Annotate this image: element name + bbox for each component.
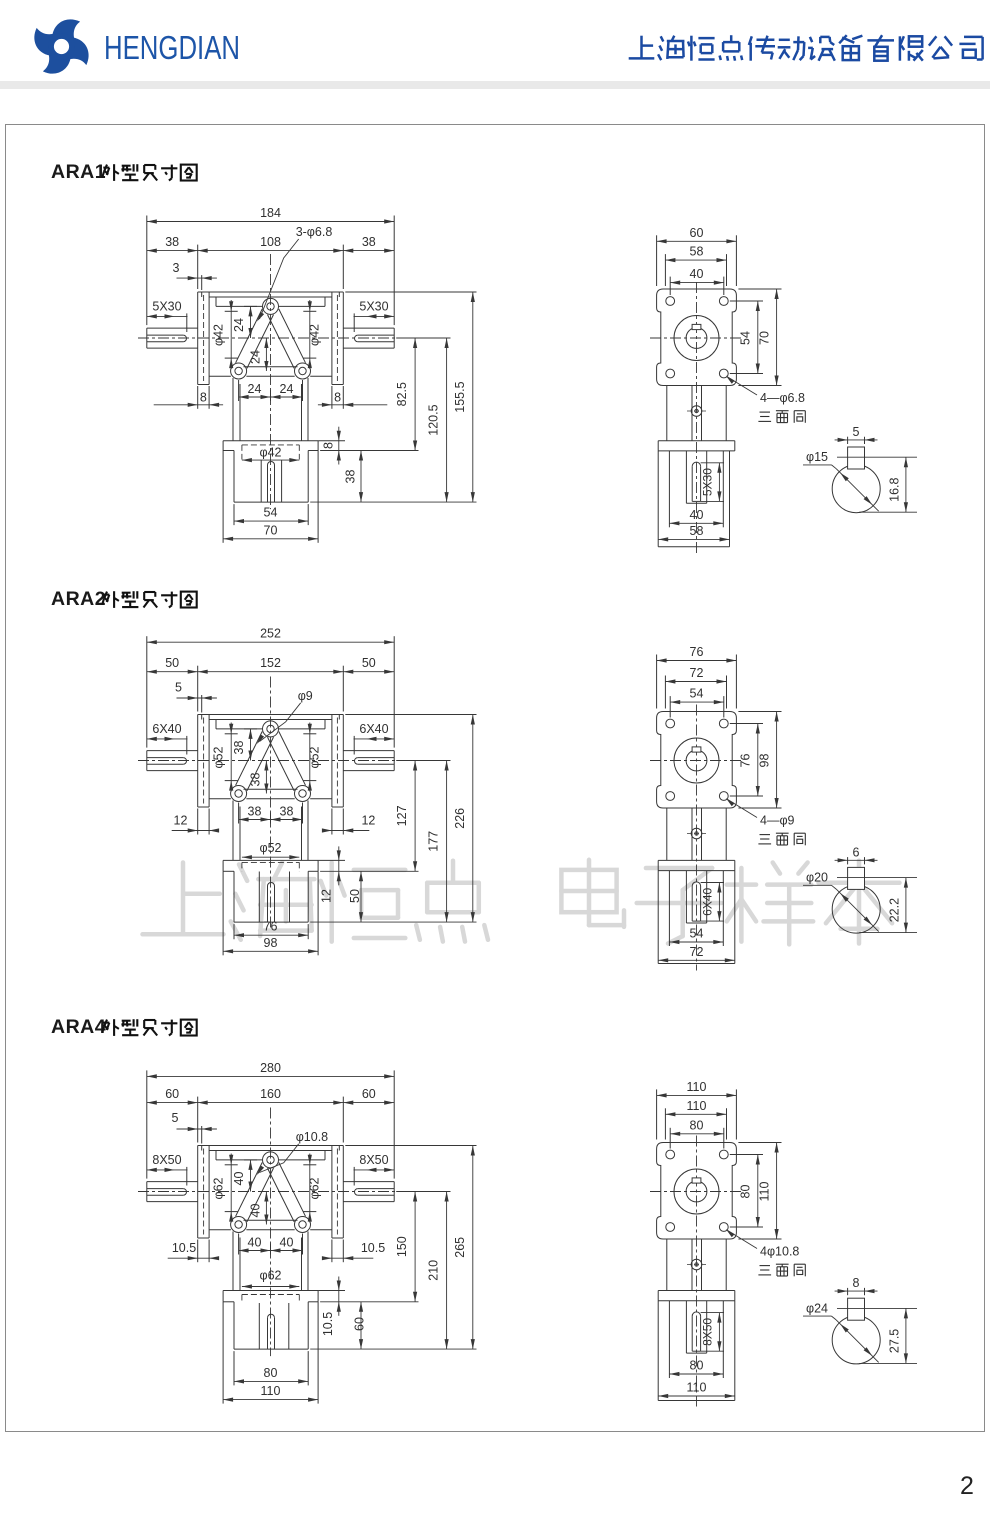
svg-text:27.5: 27.5 [887,1329,901,1353]
svg-text:ARA2: ARA2 [51,588,106,610]
svg-text:50: 50 [165,656,179,670]
svg-text:70: 70 [264,523,278,537]
svg-text:φ52: φ52 [259,841,281,855]
svg-text:127: 127 [395,805,409,826]
svg-text:110: 110 [758,1181,772,1201]
svg-text:58: 58 [690,245,704,259]
svg-text:φ52: φ52 [308,746,322,768]
svg-text:5: 5 [175,681,182,695]
svg-text:155.5: 155.5 [453,381,467,412]
svg-text:38: 38 [344,470,358,484]
svg-text:120.5: 120.5 [427,404,441,435]
svg-text:φ15: φ15 [806,450,828,464]
svg-text:8X50: 8X50 [701,1318,715,1346]
svg-text:24: 24 [248,382,262,396]
svg-text:ARA4: ARA4 [51,1016,106,1038]
svg-text:φ42: φ42 [259,446,281,460]
svg-text:4—φ6.8: 4—φ6.8 [760,391,805,405]
svg-text:8X50: 8X50 [152,1153,181,1167]
svg-text:8: 8 [334,391,341,405]
svg-text:4φ10.8: 4φ10.8 [760,1245,799,1259]
svg-text:5X30: 5X30 [152,300,181,314]
svg-text:50: 50 [362,656,376,670]
svg-text:82.5: 82.5 [395,382,409,406]
svg-text:76: 76 [739,754,753,768]
svg-text:110: 110 [687,1099,707,1113]
svg-text:38: 38 [249,773,263,787]
svg-text:80: 80 [690,1118,704,1132]
svg-text:φ62: φ62 [308,1177,322,1199]
svg-text:24: 24 [232,318,246,332]
svg-text:12: 12 [361,814,375,828]
svg-text:5: 5 [172,1111,179,1125]
svg-text:24: 24 [249,350,263,364]
svg-text:φ9: φ9 [298,689,313,703]
svg-text:12: 12 [320,889,334,903]
svg-text:5X30: 5X30 [359,300,388,314]
svg-text:40: 40 [690,508,704,522]
svg-text:160: 160 [260,1087,281,1101]
svg-text:76: 76 [264,920,278,934]
svg-text:6X40: 6X40 [152,722,181,736]
svg-text:38: 38 [280,805,294,819]
svg-text:10.5: 10.5 [321,1312,335,1336]
svg-text:80: 80 [690,1359,704,1373]
svg-text:6X40: 6X40 [701,887,715,915]
svg-text:54: 54 [690,687,704,701]
svg-text:60: 60 [353,1317,367,1331]
svg-text:3-φ6.8: 3-φ6.8 [296,225,333,239]
svg-text:40: 40 [232,1172,246,1186]
svg-text:108: 108 [260,235,281,249]
svg-text:φ52: φ52 [212,746,226,768]
svg-text:40: 40 [690,267,704,281]
svg-text:8: 8 [322,442,336,449]
svg-text:50: 50 [348,889,362,903]
svg-text:110: 110 [687,1080,707,1094]
svg-text:φ62: φ62 [212,1177,226,1199]
svg-text:72: 72 [690,945,704,959]
svg-text:40: 40 [248,1236,262,1250]
svg-text:ARA1: ARA1 [51,161,106,183]
svg-text:10.5: 10.5 [361,1241,385,1255]
svg-text:150: 150 [395,1236,409,1257]
svg-text:φ62: φ62 [259,1269,281,1283]
svg-text:177: 177 [427,831,441,852]
svg-text:80: 80 [264,1366,278,1380]
svg-text:265: 265 [453,1237,467,1258]
svg-text:76: 76 [690,645,704,659]
svg-text:38: 38 [165,235,179,249]
svg-text:8: 8 [200,391,207,405]
svg-text:98: 98 [758,754,772,768]
svg-text:3: 3 [173,261,180,275]
svg-text:54: 54 [739,331,753,345]
svg-text:10.5: 10.5 [172,1241,196,1255]
svg-text:110: 110 [261,1384,281,1398]
svg-text:58: 58 [690,524,704,538]
svg-text:φ42: φ42 [308,324,322,346]
svg-text:40: 40 [280,1236,294,1250]
svg-text:38: 38 [362,235,376,249]
svg-text:5X30: 5X30 [701,468,715,496]
svg-text:80: 80 [739,1185,753,1199]
svg-text:60: 60 [165,1087,179,1101]
svg-text:110: 110 [687,1381,707,1395]
svg-text:72: 72 [690,666,704,680]
svg-text:φ20: φ20 [806,871,828,885]
svg-text:22.2: 22.2 [887,898,901,922]
svg-text:φ10.8: φ10.8 [296,1130,328,1144]
svg-text:54: 54 [690,927,704,941]
svg-text:φ24: φ24 [806,1301,828,1315]
svg-text:70: 70 [758,331,772,345]
svg-text:12: 12 [174,814,188,828]
svg-text:226: 226 [453,808,467,829]
svg-text:38: 38 [248,805,262,819]
svg-text:8: 8 [853,1276,860,1290]
svg-text:8X50: 8X50 [359,1153,388,1167]
svg-text:6: 6 [853,845,860,859]
svg-text:60: 60 [362,1087,376,1101]
svg-text:4—φ9: 4—φ9 [760,814,795,828]
svg-text:54: 54 [264,506,278,520]
svg-text:184: 184 [260,206,281,220]
svg-text:16.8: 16.8 [887,477,901,501]
svg-text:38: 38 [232,741,246,755]
svg-text:152: 152 [260,656,281,670]
svg-text:280: 280 [260,1061,281,1075]
svg-text:φ42: φ42 [212,324,226,346]
svg-text:5: 5 [853,425,860,439]
svg-text:40: 40 [249,1204,263,1218]
svg-text:98: 98 [264,936,278,950]
svg-text:6X40: 6X40 [359,722,388,736]
svg-text:210: 210 [427,1260,441,1281]
svg-text:24: 24 [280,382,294,396]
svg-text:252: 252 [260,627,281,641]
svg-text:HENGDIAN: HENGDIAN [104,29,240,66]
svg-text:60: 60 [690,226,704,240]
